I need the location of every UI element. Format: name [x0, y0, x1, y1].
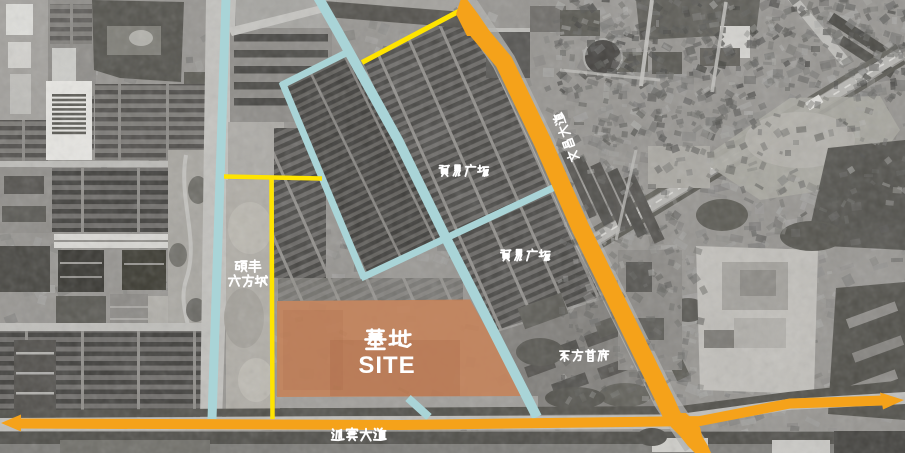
svg-text:SITE: SITE	[358, 352, 415, 379]
